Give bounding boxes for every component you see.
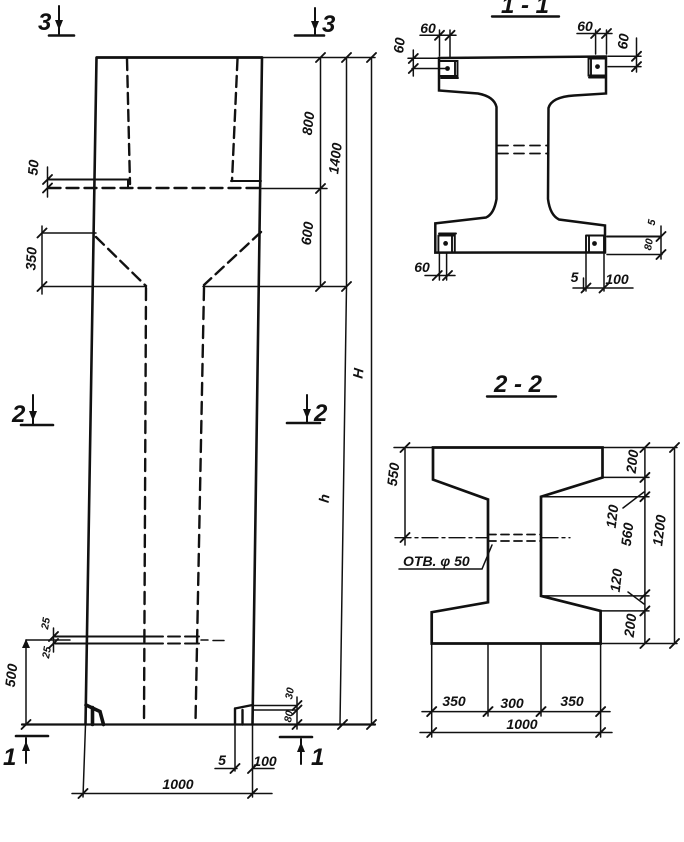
svg-text:25: 25 (40, 646, 54, 661)
svg-text:350: 350 (560, 693, 584, 709)
svg-text:80: 80 (282, 710, 296, 724)
svg-text:3: 3 (38, 9, 52, 36)
svg-text:1000: 1000 (162, 776, 193, 792)
svg-text:5: 5 (571, 269, 579, 285)
svg-text:120: 120 (603, 504, 622, 529)
svg-text:60: 60 (414, 259, 430, 275)
svg-text:2 - 2: 2 - 2 (493, 371, 543, 398)
svg-text:5: 5 (646, 218, 659, 226)
svg-text:60: 60 (390, 36, 408, 54)
svg-text:1: 1 (3, 744, 16, 771)
svg-text:25: 25 (39, 617, 53, 632)
svg-text:80: 80 (642, 238, 656, 252)
svg-text:600: 600 (298, 221, 317, 246)
svg-text:500: 500 (2, 663, 21, 688)
svg-text:60: 60 (420, 20, 436, 36)
svg-text:120: 120 (607, 568, 626, 593)
svg-text:1000: 1000 (506, 716, 537, 732)
svg-text:350: 350 (22, 246, 39, 270)
svg-text:560: 560 (618, 522, 637, 547)
svg-text:5: 5 (218, 752, 226, 768)
svg-text:1400: 1400 (325, 142, 345, 175)
svg-text:100: 100 (605, 271, 629, 287)
svg-text:ОТВ. φ 50: ОТВ. φ 50 (403, 553, 470, 569)
svg-text:H: H (349, 367, 366, 380)
svg-text:800: 800 (299, 111, 318, 136)
svg-text:1200: 1200 (649, 514, 669, 547)
svg-text:200: 200 (623, 449, 642, 475)
svg-text:100: 100 (253, 753, 277, 769)
svg-text:1: 1 (311, 744, 324, 771)
svg-text:50: 50 (24, 159, 41, 176)
svg-text:3: 3 (322, 11, 336, 38)
svg-text:550: 550 (384, 462, 403, 487)
svg-text:60: 60 (577, 18, 593, 34)
svg-text:350: 350 (442, 693, 466, 709)
svg-text:300: 300 (500, 695, 524, 711)
svg-text:h: h (316, 493, 333, 503)
svg-text:200: 200 (621, 613, 640, 639)
svg-text:60: 60 (614, 32, 632, 50)
svg-text:30: 30 (283, 687, 297, 701)
